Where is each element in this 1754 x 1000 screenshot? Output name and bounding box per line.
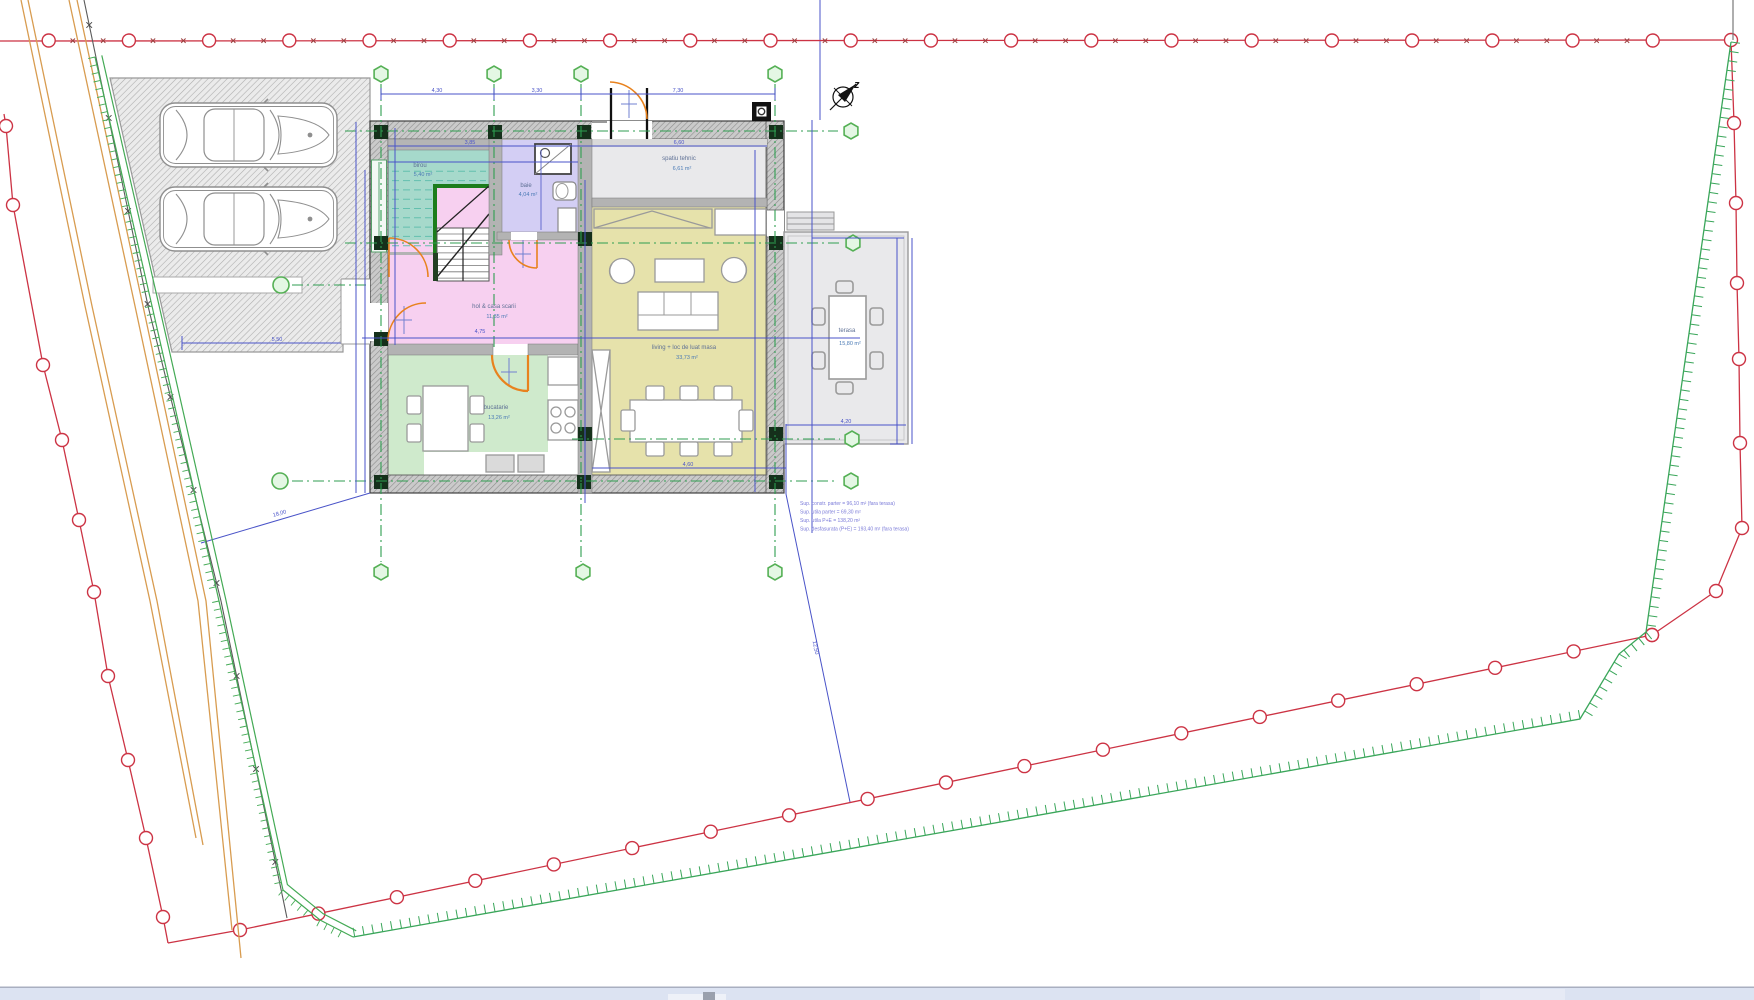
- svg-text:birou: birou: [413, 163, 426, 169]
- svg-text:6,61 m²: 6,61 m²: [673, 166, 692, 172]
- svg-text:spatiu tehnic: spatiu tehnic: [662, 156, 696, 162]
- svg-text:4,20: 4,20: [841, 419, 852, 425]
- svg-text:7,30: 7,30: [673, 88, 684, 94]
- svg-text:6,60: 6,60: [674, 140, 685, 146]
- svg-text:living + loc de luat masa: living + loc de luat masa: [652, 345, 717, 351]
- svg-text:terasa: terasa: [839, 328, 856, 334]
- svg-text:3,85: 3,85: [465, 140, 476, 146]
- svg-text:Sup. utila parter = 69,30 m²: Sup. utila parter = 69,30 m²: [800, 510, 861, 516]
- svg-text:11,35 m²: 11,35 m²: [486, 314, 507, 320]
- svg-text:4,30: 4,30: [432, 88, 443, 94]
- svg-text:baie: baie: [520, 183, 532, 189]
- svg-text:33,73 m²: 33,73 m²: [676, 355, 698, 361]
- svg-text:bucatarie: bucatarie: [484, 405, 509, 411]
- svg-text:z: z: [853, 79, 860, 91]
- svg-text:4,04 m²: 4,04 m²: [519, 192, 538, 198]
- svg-text:13,26 m²: 13,26 m²: [488, 415, 510, 421]
- svg-text:hol & casa scarii: hol & casa scarii: [472, 304, 516, 310]
- svg-text:Sup. desfasurata (P+E) = 193,4: Sup. desfasurata (P+E) = 193,40 m² (fara…: [800, 527, 909, 533]
- svg-text:Sup. constr. parter = 96,10 m²: Sup. constr. parter = 96,10 m² (fara ter…: [800, 501, 895, 507]
- svg-text:4,75: 4,75: [475, 329, 486, 335]
- svg-text:5,40 m²: 5,40 m²: [414, 172, 433, 178]
- svg-text:Sup. utila P+E = 138,20 m²: Sup. utila P+E = 138,20 m²: [800, 518, 860, 524]
- svg-text:3,30: 3,30: [532, 88, 543, 94]
- svg-text:15,80 m²: 15,80 m²: [839, 341, 861, 347]
- svg-text:4,60: 4,60: [683, 462, 694, 468]
- svg-text:5,50: 5,50: [272, 337, 283, 343]
